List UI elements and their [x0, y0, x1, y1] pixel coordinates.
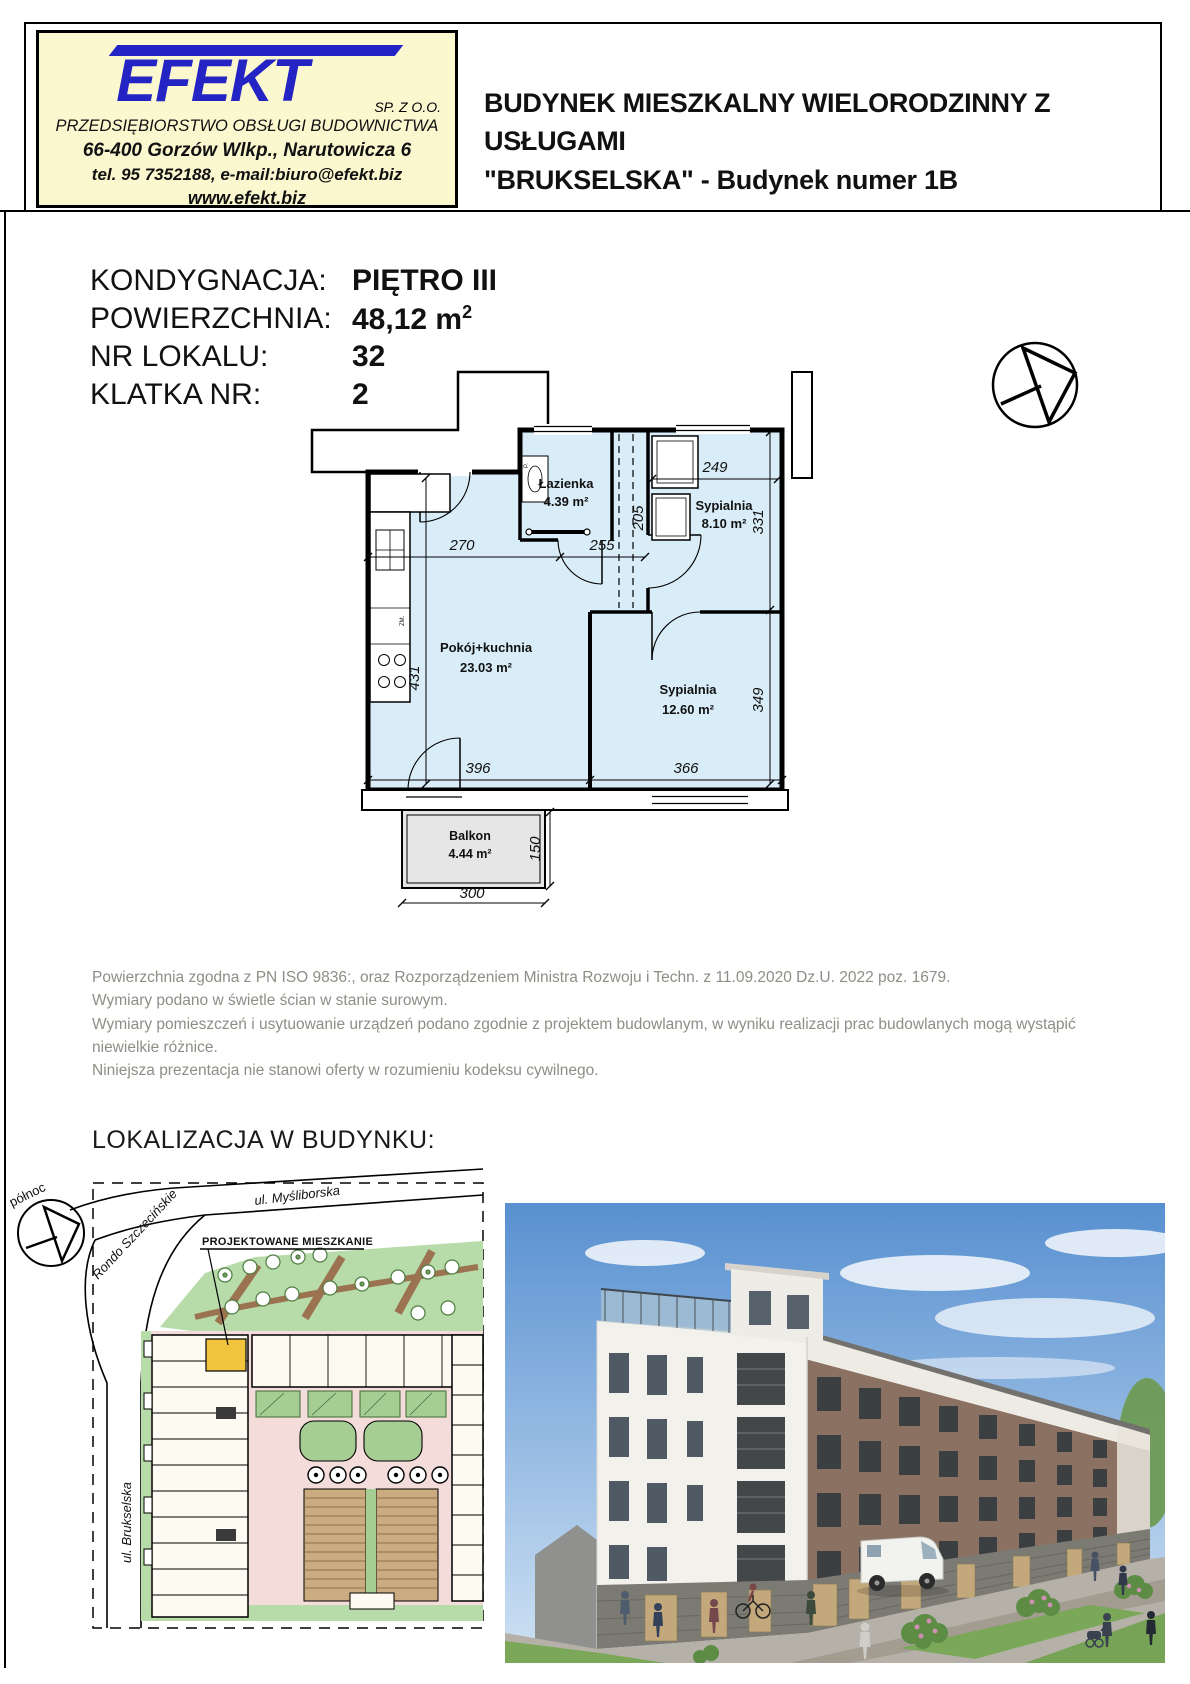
west-green-strip [141, 1331, 151, 1621]
dim-349: 349 [750, 687, 767, 713]
site-plan: północ ul. Myśliborska Rondo Szc [0, 1145, 500, 1665]
company-website[interactable]: www.efekt.biz [39, 188, 455, 209]
offer-sheet-page: EFEKT SP. Z O.O. PRZEDSIĘBIORSTWO OBSŁUG… [0, 0, 1190, 1684]
floor-plan: ZM. P. [300, 360, 820, 935]
private-gardens [256, 1391, 446, 1417]
company-name: EFEKT [39, 51, 385, 111]
delivery-van [857, 1537, 949, 1597]
building-west-wing [144, 1335, 248, 1617]
street-brukselska-label: ul. Brukselska [119, 1482, 134, 1563]
note-line-3: Wymiary pomieszczeń i usytuowanie urządz… [92, 1013, 1106, 1060]
title-line-1: BUDYNEK MIESZKALNY WIELORODZINNY Z USŁUG… [484, 84, 1174, 161]
room-bathroom-area: 4.39 m² [544, 494, 589, 509]
dim-366: 366 [673, 760, 699, 777]
penthouse [731, 1269, 823, 1345]
dim-205: 205 [630, 505, 647, 532]
room-bedroom2-area: 12.60 m² [662, 702, 715, 717]
company-contact: tel. 95 7352188, e-mail:biuro@efekt.biz [39, 165, 455, 185]
dim-300: 300 [459, 885, 485, 902]
street-mysliborska-label: ul. Myśliborska [254, 1183, 341, 1208]
callout-label: PROJEKTOWANE MIESZKANIE [202, 1236, 373, 1248]
dim-249: 249 [701, 459, 728, 476]
room-livingkitchen-name: Pokój+kuchnia [440, 640, 533, 655]
header-separator-line [0, 210, 1190, 212]
info-value-floor: PIĘTRO III [352, 264, 497, 299]
street-rondo-label: Rondo Szczecińskie [89, 1186, 180, 1282]
fixture-label-p: P. [524, 463, 530, 468]
room-bedroom2-name: Sypialnia [659, 682, 717, 697]
dim-396: 396 [465, 760, 491, 777]
info-label-floor: KONDYGNACJA: [90, 264, 352, 299]
info-label-area: POWIERZCHNIA: [90, 302, 352, 338]
company-logo-box: EFEKT SP. Z O.O. PRZEDSIĘBIORSTWO OBSŁUG… [36, 30, 458, 208]
room-bathroom-name: Łazienka [539, 476, 595, 491]
window-bathroom [534, 424, 592, 435]
fixture-label-zm: ZM. [400, 615, 406, 626]
dim-270: 270 [448, 537, 475, 554]
staircase-corridor-outline [312, 372, 548, 472]
penthouse-window [749, 1291, 771, 1325]
compass-north-label: północ [7, 1179, 48, 1209]
site-compass-icon [18, 1200, 84, 1266]
highlighted-unit [206, 1339, 246, 1371]
note-line-4: Niniejsza prezentacja nie stanowi oferty… [92, 1059, 1106, 1082]
window-bedroom1 [676, 423, 750, 434]
document-title: BUDYNEK MIESZKALNY WIELORODZINNY Z USŁUG… [484, 84, 1174, 199]
info-value-area: 48,12 m2 [352, 302, 497, 338]
north-compass-icon [985, 328, 1085, 438]
building-render [505, 1203, 1165, 1663]
parking-area [304, 1489, 438, 1609]
dim-150: 150 [527, 836, 544, 862]
room-livingkitchen-area: 23.03 m² [460, 660, 513, 675]
room-bedroom1-name: Sypialnia [695, 498, 753, 513]
room-bedroom1-area: 8.10 m² [702, 516, 747, 531]
title-line-2: "BRUKSELSKA" - Budynek numer 1B [484, 161, 1174, 199]
area-superscript: 2 [462, 302, 472, 322]
legal-notes: Powierzchnia zgodna z PN ISO 9836:, oraz… [92, 966, 1106, 1082]
company-address: 66-400 Gorzów Wlkp., Narutowicza 6 [39, 140, 455, 162]
room-balcony-name: Balkon [449, 829, 491, 843]
note-line-1: Powierzchnia zgodna z PN ISO 9836:, oraz… [92, 966, 1106, 989]
balcony-door-opening [406, 792, 462, 808]
dim-255: 255 [588, 537, 615, 554]
note-line-2: Wymiary podano w świetle ścian w stanie … [92, 989, 1106, 1012]
room-balcony-area: 4.44 m² [448, 847, 491, 861]
company-legal-form: SP. Z O.O. [374, 99, 441, 115]
penthouse-window [787, 1295, 809, 1329]
dim-331: 331 [750, 509, 767, 534]
window-bedroom2 [652, 792, 748, 808]
neighbour-wall [792, 372, 812, 478]
corner-building-balconies [737, 1353, 785, 1583]
dim-431: 431 [406, 665, 423, 690]
building-north-wing [252, 1335, 483, 1387]
building-east-wing [452, 1335, 483, 1601]
company-subtitle: PRZEDSIĘBIORSTWO OBSŁUGI BUDOWNICTWA [39, 117, 455, 136]
company-logo: EFEKT SP. Z O.O. [39, 43, 455, 115]
